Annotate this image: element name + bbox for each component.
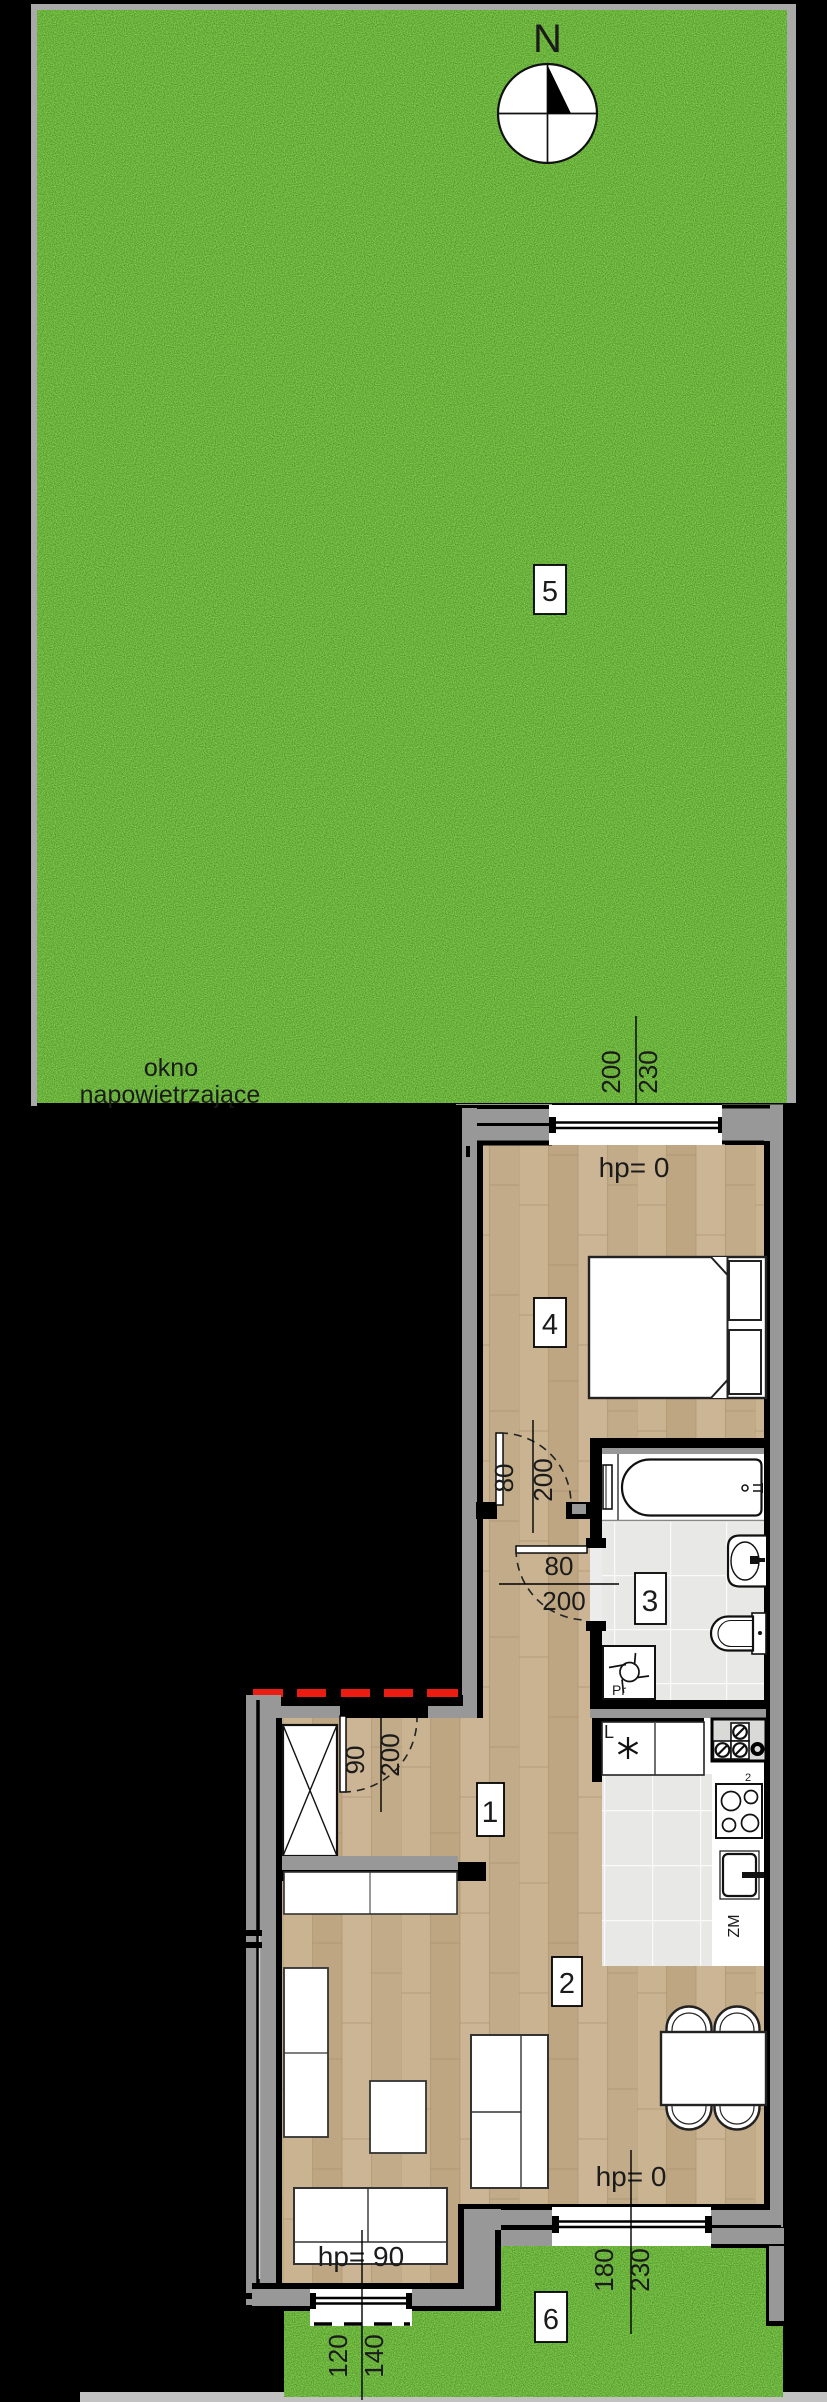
svg-text:L: L: [604, 1722, 614, 1742]
svg-text:6: 6: [543, 2304, 559, 2336]
svg-text:200: 200: [542, 1586, 585, 1616]
svg-text:2: 2: [745, 1772, 751, 1784]
svg-text:120: 120: [323, 2334, 353, 2377]
svg-text:200: 200: [528, 1458, 558, 1501]
svg-text:90: 90: [340, 1746, 370, 1775]
svg-text:3: 3: [642, 1585, 659, 1618]
svg-text:ZM: ZM: [726, 1914, 743, 1937]
svg-text:hp= 0: hp= 0: [599, 1152, 670, 1183]
svg-text:N: N: [533, 17, 562, 61]
svg-text:200: 200: [375, 1733, 405, 1776]
svg-text:okno: okno: [144, 1054, 198, 1082]
svg-text:2: 2: [559, 1968, 575, 2000]
svg-text:80: 80: [489, 1464, 519, 1493]
svg-text:hp= 90: hp= 90: [318, 2241, 404, 2272]
svg-text:140: 140: [359, 2334, 389, 2377]
svg-text:230: 230: [625, 2248, 655, 2291]
svg-text:5: 5: [542, 576, 558, 608]
svg-text:Pr: Pr: [612, 1682, 626, 1698]
svg-text:200: 200: [596, 1050, 626, 1093]
svg-text:80: 80: [545, 1551, 574, 1581]
svg-text:1: 1: [482, 1796, 499, 1829]
svg-text:180: 180: [589, 2248, 619, 2291]
svg-text:napowietrzające: napowietrzające: [80, 1081, 261, 1109]
svg-text:4: 4: [542, 1309, 558, 1341]
svg-text:230: 230: [633, 1050, 663, 1093]
